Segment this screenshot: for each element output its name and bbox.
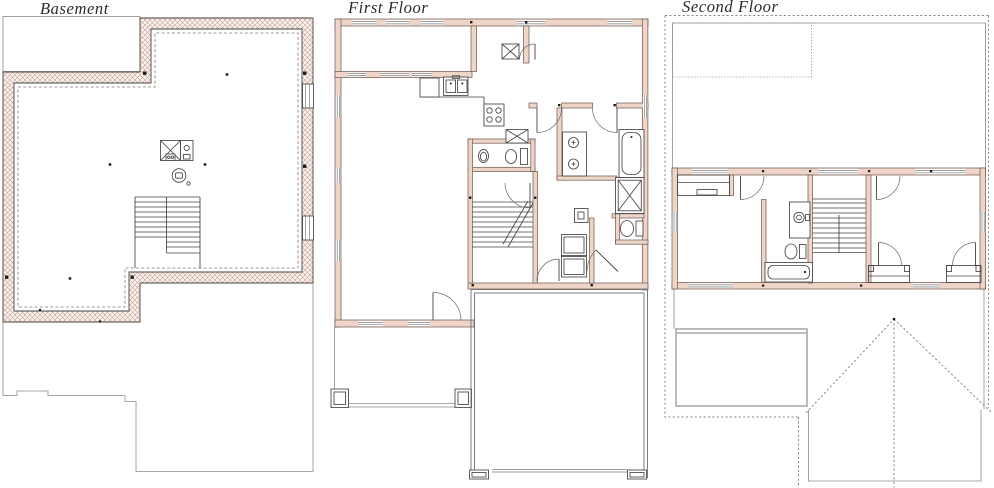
floor-plan-sheet: Basement <box>0 0 994 488</box>
porch-outline <box>335 327 472 407</box>
kitchen-sink-icon <box>444 76 469 96</box>
garage <box>470 290 648 481</box>
unexcavated-area-outline <box>3 17 140 72</box>
closet <box>947 243 982 283</box>
basement-stairs <box>135 197 200 268</box>
linen-cabinet-icon <box>575 209 589 223</box>
window <box>336 168 341 183</box>
door-arc <box>741 176 765 200</box>
garage-outline-inner <box>475 293 645 474</box>
basement-title: Basement <box>40 0 109 18</box>
roof-below-dotted <box>673 23 812 77</box>
first-floor-stairs <box>473 201 534 247</box>
floor-plans-drawing: Basement <box>0 0 994 488</box>
vanity-sink-icon <box>790 202 811 238</box>
second-floor-title: Second Floor <box>682 0 779 16</box>
window <box>643 95 647 118</box>
dishwasher-icon <box>506 130 528 144</box>
porch-column <box>455 389 472 408</box>
garage-door-opening <box>489 466 629 480</box>
window <box>386 20 410 26</box>
window <box>358 321 383 326</box>
exterior-walls <box>335 19 648 327</box>
garage-roof-outline <box>809 410 982 482</box>
window <box>352 20 377 26</box>
first-floor-title: First Floor <box>347 0 428 17</box>
roof-and-footprint-outlines <box>665 16 991 488</box>
footprint-sides <box>674 289 984 409</box>
windows <box>673 169 985 289</box>
bathroom <box>563 130 645 237</box>
window <box>408 321 430 326</box>
porch <box>331 327 472 408</box>
window <box>420 20 444 26</box>
dryer-icon <box>562 257 587 278</box>
window <box>607 20 632 26</box>
double-vanity-icon <box>563 132 587 176</box>
window <box>517 20 546 26</box>
window <box>336 240 341 262</box>
window <box>348 72 366 76</box>
washer-icon <box>562 235 587 256</box>
sink-icon <box>479 149 489 162</box>
stove-icon <box>484 104 504 126</box>
shower-icon <box>616 178 645 214</box>
roof-apex-mark <box>893 318 896 321</box>
closet-top-left <box>678 175 730 196</box>
garage-outline <box>471 290 648 478</box>
first-floor-plan: First Floor <box>331 0 648 480</box>
door-arcs <box>741 176 901 200</box>
second-floor-plan: Second Floor <box>665 0 991 488</box>
window <box>412 72 432 76</box>
porch-roof-outline <box>676 329 807 406</box>
window <box>673 212 677 232</box>
window <box>688 283 733 288</box>
cabinet <box>420 78 439 97</box>
bathtub-icon <box>765 263 813 283</box>
bedroom-closets <box>869 243 982 283</box>
door-arc <box>877 176 901 200</box>
entry-closet-icon <box>502 44 535 60</box>
laundry <box>562 235 587 278</box>
lot-dashed-boundary <box>665 16 989 488</box>
window <box>981 212 985 232</box>
window <box>692 169 728 175</box>
water-heater-icon <box>181 141 194 161</box>
floor-drain-icon <box>172 169 190 186</box>
basement-plan: Basement <box>3 0 314 472</box>
counter-line <box>421 97 484 126</box>
porch-column <box>331 389 349 408</box>
furnace-icon <box>161 141 181 161</box>
bathroom <box>765 202 813 282</box>
door-arc <box>593 108 618 133</box>
garage-pier <box>470 470 489 479</box>
foundation-walls <box>3 18 313 322</box>
window <box>336 95 341 118</box>
door-arc <box>537 259 559 281</box>
kitchen <box>420 76 528 143</box>
exterior-walls <box>672 168 986 289</box>
bathtub-icon <box>619 130 644 178</box>
lower-floor-footprint <box>673 23 986 168</box>
closet <box>869 243 910 283</box>
second-floor-stairs <box>813 199 867 253</box>
toilet-icon <box>505 149 527 165</box>
door-arc <box>433 293 461 321</box>
toilet-icon <box>620 221 643 237</box>
windows <box>336 20 648 326</box>
basement-window <box>303 84 314 108</box>
toilet-icon <box>785 244 806 259</box>
window <box>818 169 858 175</box>
window <box>913 283 940 288</box>
powder-room <box>479 149 528 165</box>
window <box>915 169 966 175</box>
garage-pier <box>628 470 647 479</box>
basement-window <box>303 216 314 240</box>
window <box>380 72 409 76</box>
gable-roof-dashed <box>806 319 991 488</box>
